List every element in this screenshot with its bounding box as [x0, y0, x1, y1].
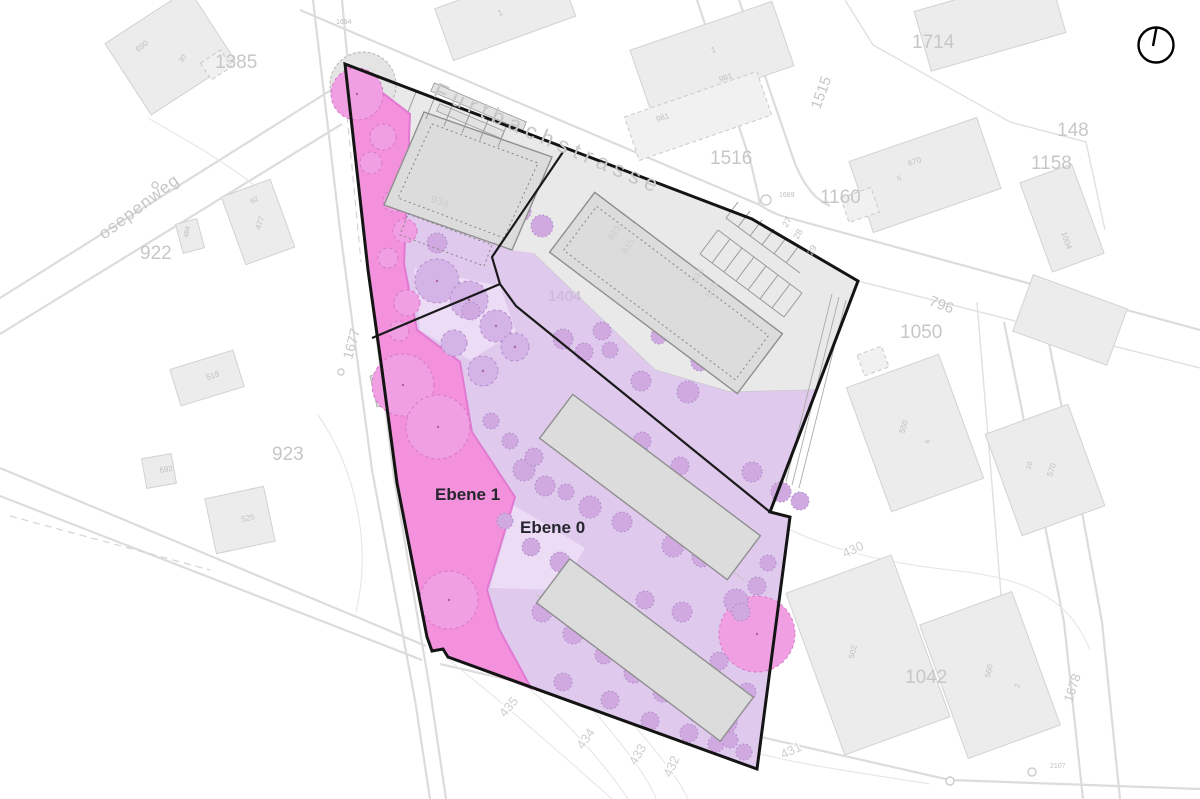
- tree-center-dot: [436, 280, 438, 282]
- tree: [441, 330, 467, 356]
- tree: [393, 219, 417, 243]
- road-node: [761, 195, 771, 205]
- tree: [631, 371, 651, 391]
- building-1004: [1020, 164, 1104, 272]
- map-label-2107: 2107: [1050, 763, 1066, 770]
- tree: [601, 691, 619, 709]
- parcel-label-1385: 1385: [215, 52, 257, 73]
- tree: [360, 152, 382, 174]
- tree: [394, 290, 420, 316]
- building-550-annex: [857, 346, 889, 376]
- tree: [525, 448, 543, 466]
- parcel-label-1404: 1404: [548, 288, 581, 305]
- tree: [462, 302, 480, 320]
- parcel-label-923: 923: [272, 444, 304, 465]
- map-label-28: 28: [791, 227, 805, 241]
- tree: [579, 496, 601, 518]
- building-502: [786, 555, 950, 755]
- tree: [672, 602, 692, 622]
- tree-center-dot: [495, 325, 497, 327]
- tree: [677, 381, 699, 403]
- map-label-434: 434: [573, 725, 598, 751]
- road-node: [1028, 768, 1036, 776]
- parcel-label-1714: 1714: [912, 32, 955, 53]
- tree: [522, 538, 540, 556]
- level-label-ebene0: Ebene 0: [520, 518, 585, 537]
- tree: [593, 322, 611, 340]
- map-label-27: 27: [780, 215, 794, 229]
- tree: [680, 724, 698, 742]
- tree: [736, 744, 752, 760]
- parcel-label-1158: 1158: [1031, 153, 1072, 174]
- building-550: [846, 354, 983, 512]
- parcel-label-1515: 1515: [808, 74, 835, 111]
- parcel-label-148: 148: [1057, 120, 1089, 141]
- tree-center-dot: [756, 633, 758, 635]
- tree: [791, 492, 809, 510]
- tree: [636, 591, 654, 609]
- parcel-label-922: 922: [140, 243, 172, 264]
- tree: [378, 248, 398, 268]
- tree: [742, 462, 762, 482]
- tree: [748, 577, 766, 595]
- building-570: [985, 404, 1105, 536]
- site-plan-svg: Furtbachstrasse osepenweg 1385 1516 1160…: [0, 0, 1200, 799]
- tree-center-dot: [356, 93, 358, 95]
- site-plan-canvas: Furtbachstrasse osepenweg 1385 1516 1160…: [0, 0, 1200, 799]
- tree: [760, 555, 776, 571]
- road-node: [946, 777, 954, 785]
- tree: [602, 342, 618, 358]
- tree-center-dot: [437, 426, 439, 428]
- tree: [531, 215, 553, 237]
- north-arrow-icon: [1139, 28, 1174, 63]
- tree: [502, 433, 518, 449]
- parcel-label-1678: 1678: [1061, 672, 1084, 704]
- map-label-433: 433: [626, 741, 650, 767]
- parcel-label-1042: 1042: [905, 667, 947, 688]
- tree: [575, 343, 593, 361]
- contour-923: [318, 415, 362, 612]
- parcel-label-1050: 1050: [900, 322, 942, 343]
- tree: [612, 512, 632, 532]
- parcel-label-1677: 1677: [339, 326, 363, 360]
- street-name-sidestreet: osepenweg: [95, 170, 183, 243]
- tree: [370, 124, 396, 150]
- tree: [535, 476, 555, 496]
- tree-center-dot: [448, 599, 450, 601]
- parcel-label-1516: 1516: [710, 148, 752, 169]
- parcel-label-796: 796: [927, 293, 956, 318]
- tree-center-dot: [468, 299, 470, 301]
- tree: [497, 513, 513, 529]
- map-label-1694: 1694: [336, 19, 352, 26]
- parcel-label-1160: 1160: [820, 187, 861, 208]
- tree-center-dot: [482, 370, 484, 372]
- road-sidestreet-south-edge: [0, 124, 342, 334]
- tree-center-dot: [514, 346, 516, 348]
- building-1158b: [1013, 275, 1127, 366]
- map-label-432: 432: [660, 753, 683, 779]
- map-label-430: 430: [840, 538, 866, 561]
- map-label-1689: 1689: [779, 192, 795, 199]
- building-top-1: [435, 0, 576, 61]
- tree-center-dot: [402, 384, 404, 386]
- road-node: [338, 369, 344, 375]
- tree: [427, 233, 447, 253]
- building-525: [205, 486, 275, 553]
- level-label-ebene1: Ebene 1: [435, 485, 500, 504]
- tree: [483, 413, 499, 429]
- tree: [732, 603, 750, 621]
- tree: [554, 673, 572, 691]
- tree: [558, 484, 574, 500]
